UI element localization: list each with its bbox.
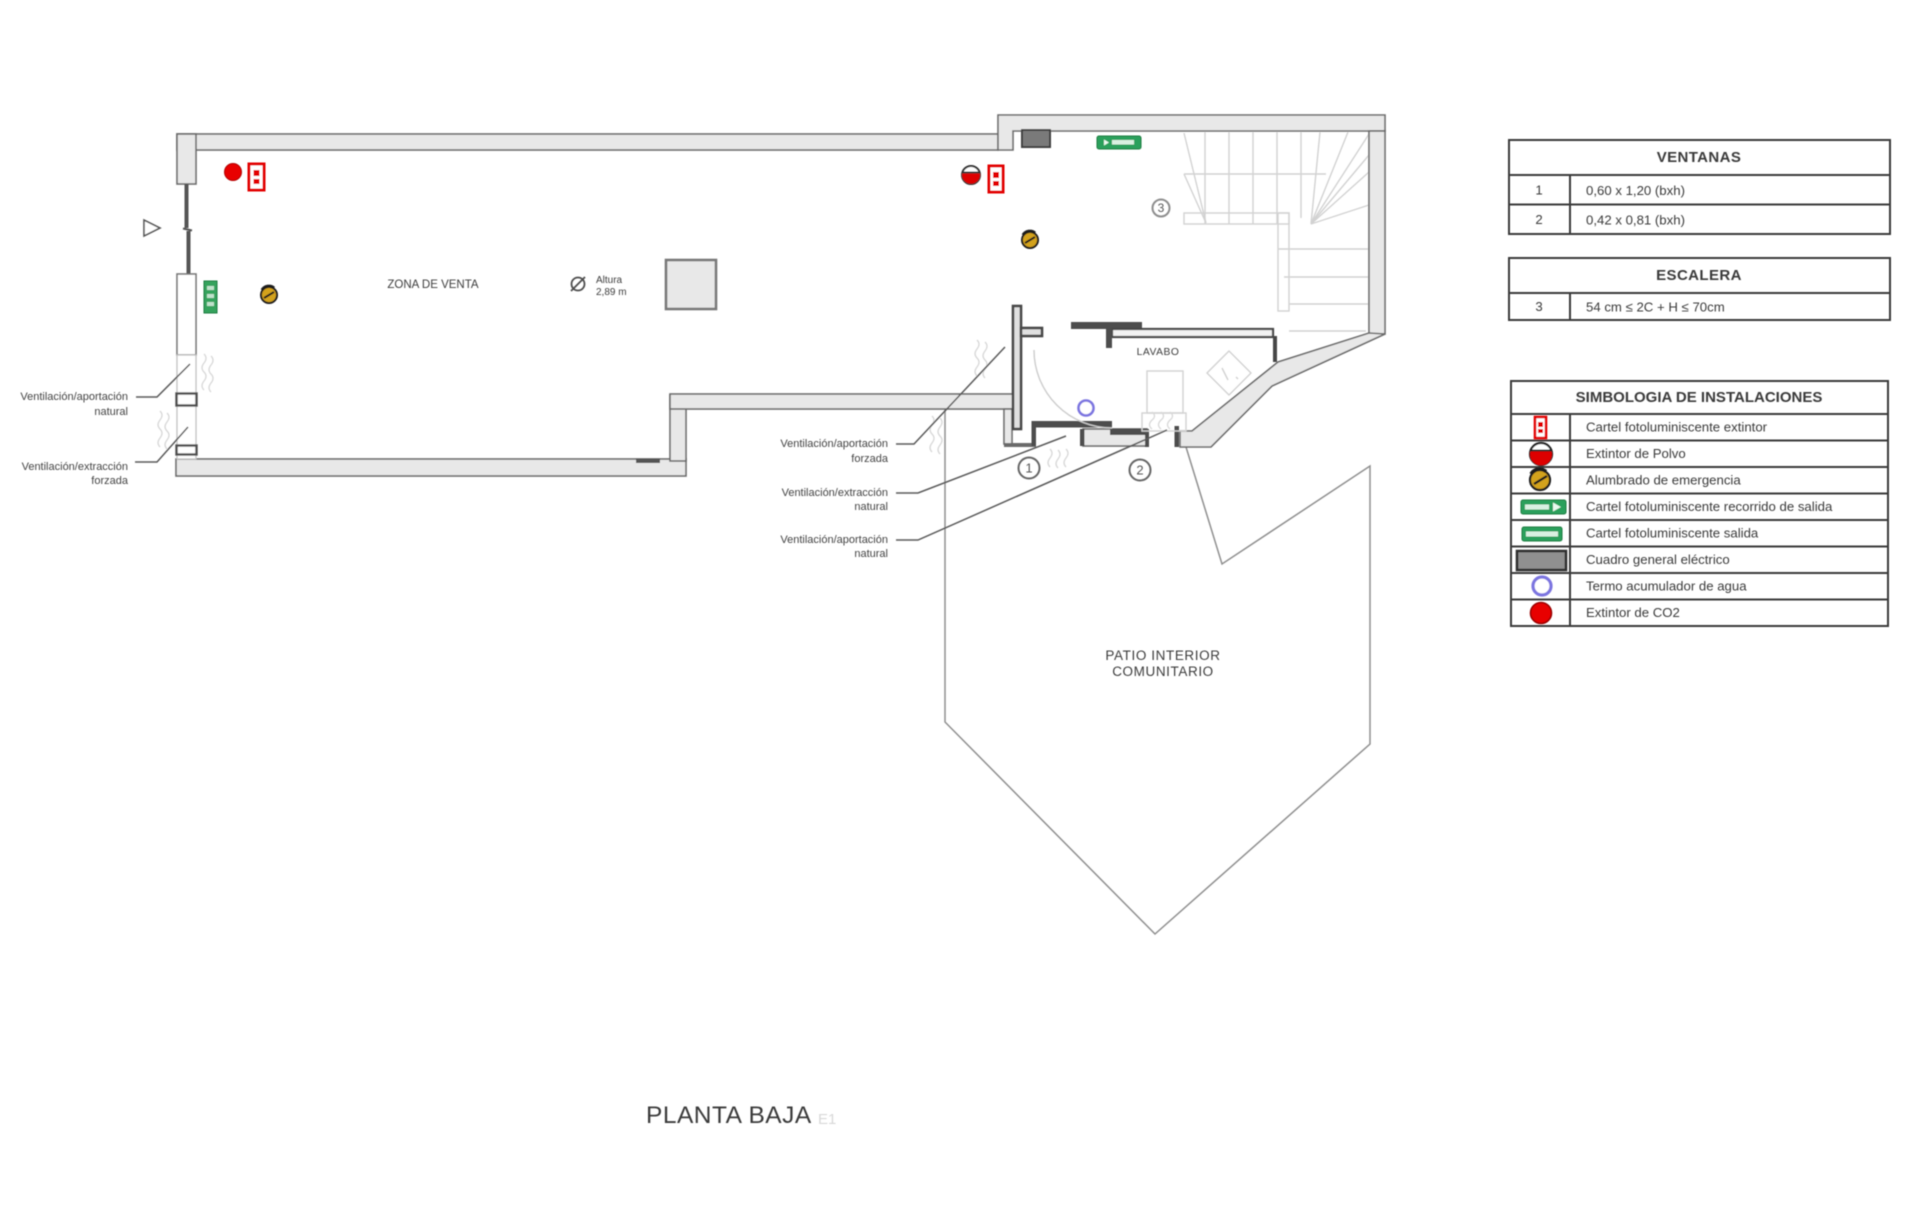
svg-text:natural: natural	[854, 548, 888, 560]
svg-text:0,60 x 1,20 (bxh): 0,60 x 1,20 (bxh)	[1586, 183, 1685, 198]
svg-text:Cartel fotoluminiscente salida: Cartel fotoluminiscente salida	[1586, 526, 1759, 541]
svg-text:ESCALERA: ESCALERA	[1656, 267, 1742, 284]
svg-text:2,89 m: 2,89 m	[596, 287, 627, 298]
svg-text:Extintor de CO2: Extintor de CO2	[1586, 605, 1680, 620]
svg-text:1: 1	[1535, 183, 1542, 198]
svg-text:2: 2	[1136, 463, 1143, 478]
svg-text:Alumbrado de emergencia: Alumbrado de emergencia	[1586, 473, 1741, 488]
svg-text:Cuadro general eléctrico: Cuadro general eléctrico	[1586, 552, 1730, 567]
svg-text:forzada: forzada	[851, 453, 889, 465]
svg-text:Extintor de Polvo: Extintor de Polvo	[1586, 446, 1686, 461]
svg-text:54 cm ≤ 2C + H ≤ 70cm: 54 cm ≤ 2C + H ≤ 70cm	[1586, 300, 1725, 315]
svg-text:2: 2	[1535, 212, 1542, 227]
svg-text:Cartel fotoluminiscente extint: Cartel fotoluminiscente extintor	[1586, 420, 1768, 435]
svg-text:3: 3	[1158, 201, 1165, 215]
svg-text:Ventilación/extracción: Ventilación/extracción	[22, 461, 128, 473]
svg-text:1: 1	[1025, 461, 1032, 476]
svg-text:Termo acumulador de agua: Termo acumulador de agua	[1586, 579, 1747, 594]
svg-text:VENTANAS: VENTANAS	[1657, 149, 1742, 166]
svg-text:Cartel fotoluminiscente recorr: Cartel fotoluminiscente recorrido de sal…	[1586, 499, 1833, 514]
svg-text:0,42 x 0,81 (bxh): 0,42 x 0,81 (bxh)	[1586, 213, 1685, 228]
svg-text:PATIO INTERIOR: PATIO INTERIOR	[1105, 648, 1220, 663]
svg-text:E1: E1	[818, 1111, 836, 1128]
svg-text:forzada: forzada	[91, 475, 129, 487]
svg-text:Ventilación/aportación: Ventilación/aportación	[780, 534, 888, 546]
svg-text:COMUNITARIO: COMUNITARIO	[1112, 664, 1214, 679]
svg-text:natural: natural	[94, 406, 128, 418]
svg-text:Altura: Altura	[596, 275, 623, 286]
svg-text:PLANTA BAJA: PLANTA BAJA	[646, 1102, 812, 1129]
svg-text:natural: natural	[854, 501, 888, 513]
svg-text:LAVABO: LAVABO	[1137, 347, 1180, 358]
svg-text:Ventilación/aportación: Ventilación/aportación	[20, 391, 128, 403]
svg-text:ZONA DE VENTA: ZONA DE VENTA	[387, 279, 478, 291]
svg-text:Ventilación/aportación: Ventilación/aportación	[780, 438, 888, 450]
svg-text:3: 3	[1535, 299, 1542, 314]
svg-text:SIMBOLOGIA DE INSTALACIONES: SIMBOLOGIA DE INSTALACIONES	[1576, 389, 1823, 406]
svg-text:Ventilación/extracción: Ventilación/extracción	[782, 487, 888, 499]
